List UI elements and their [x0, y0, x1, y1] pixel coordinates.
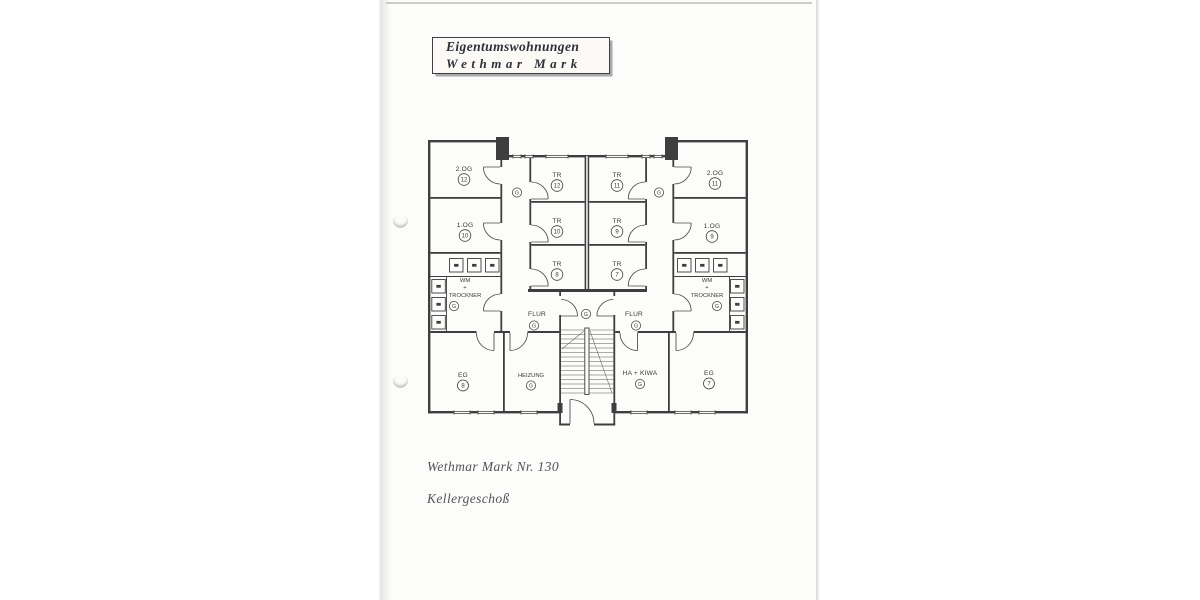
unit-number: 12	[554, 184, 561, 190]
letter: G	[715, 304, 719, 310]
room-label-wm-trockner-right: WM + TROCKNER G	[691, 278, 724, 311]
window	[606, 154, 628, 158]
room-label-1og-9: 1.OG 9	[704, 223, 721, 242]
paper-sheet: Eigentumswohnungen Wethmar Mark	[380, 0, 818, 600]
room-name: WM	[460, 278, 470, 284]
letter: G	[584, 312, 588, 318]
window	[654, 154, 662, 158]
paper-left-shadow	[380, 0, 391, 600]
unit-number: 10	[462, 234, 469, 240]
letter: G	[452, 304, 456, 310]
room-label-tr-10: TR 10	[551, 218, 563, 237]
unit-number: 12	[461, 178, 468, 184]
room-name: +	[463, 285, 467, 291]
washer-icon	[432, 298, 446, 312]
room-label-ha-kiwa: HA + KIWA G	[623, 370, 658, 389]
room-name: TR	[612, 172, 621, 179]
caption-floor: Kellergeschoß	[427, 491, 510, 507]
washer-icon	[696, 259, 710, 273]
room-name: 1.OG	[457, 222, 474, 229]
room-name: EG	[704, 370, 714, 377]
window	[675, 410, 691, 414]
unit-number: 11	[712, 182, 719, 188]
scanned-floor-plan-page: Eigentumswohnungen Wethmar Mark	[0, 0, 1200, 600]
room-name: TR	[552, 218, 561, 225]
washer-icon	[731, 316, 745, 330]
letter: G	[634, 323, 638, 329]
room-name: FLUR	[528, 311, 546, 318]
window	[521, 410, 537, 414]
unit-number: 10	[554, 230, 561, 236]
washer-icon	[450, 259, 464, 273]
punch-hole-top	[393, 213, 408, 228]
letter: G	[515, 190, 519, 196]
washer-icon	[486, 259, 500, 273]
room-label-flur-right: FLUR G	[625, 311, 643, 330]
room-name: 2.OG	[456, 166, 473, 173]
window	[631, 410, 647, 414]
room-name: TR	[612, 261, 621, 268]
room-name: TR	[552, 172, 561, 179]
floor-plan-drawing: 2.OG 12 1.OG 10 TR 12 TR 10	[418, 135, 758, 440]
washer-icon	[432, 280, 446, 294]
title-box: Eigentumswohnungen Wethmar Mark	[432, 37, 610, 74]
letter: G	[638, 382, 642, 388]
room-name: 1.OG	[704, 223, 721, 230]
letter: G	[657, 190, 661, 196]
room-name: TROCKNER	[449, 293, 482, 299]
room-name: FLUR	[625, 311, 643, 318]
room-label-tr-7: TR 7	[611, 261, 623, 280]
room-name: HEIZUNG	[518, 373, 545, 379]
corridor-letter-right: G	[654, 188, 663, 197]
stair-landing-letter: G	[581, 309, 590, 318]
window	[546, 154, 568, 158]
washer-icon	[432, 316, 446, 330]
title-line-2: Wethmar Mark	[446, 56, 609, 72]
washer-icon	[678, 259, 692, 273]
window	[699, 410, 715, 414]
washer-icon	[731, 298, 745, 312]
room-name: TROCKNER	[691, 293, 724, 299]
room-name: HA + KIWA	[623, 370, 658, 377]
window	[525, 154, 533, 158]
caption-address: Wethmar Mark Nr. 130	[427, 459, 559, 475]
window	[478, 410, 494, 414]
paper-right-edge	[816, 0, 818, 600]
punch-hole-bottom	[393, 373, 408, 388]
window	[454, 410, 470, 414]
room-label-tr-9: TR 9	[611, 218, 623, 237]
room-label-eg-8: EG 8	[458, 372, 469, 391]
washer-icon	[731, 280, 745, 294]
room-label-2og-12: 2.OG 12	[456, 166, 473, 185]
room-name: +	[705, 285, 709, 291]
washer-icon	[714, 259, 728, 273]
staircase	[561, 328, 613, 395]
corridor-letter-left: G	[512, 188, 521, 197]
window	[513, 154, 521, 158]
room-label-2og-11: 2.OG 11	[707, 170, 724, 189]
window	[642, 154, 650, 158]
room-name: TR	[552, 261, 561, 268]
room-name: TR	[612, 218, 621, 225]
paper-top-edge	[386, 2, 812, 4]
room-name: EG	[458, 372, 468, 379]
room-label-wm-trockner-left: WM + TROCKNER G	[449, 278, 482, 311]
title-line-1: Eigentumswohnungen	[446, 39, 609, 55]
room-label-tr-11: TR 11	[611, 172, 623, 191]
washer-icon	[468, 259, 482, 273]
room-label-tr-8: TR 8	[551, 261, 563, 280]
room-label-tr-12: TR 12	[551, 172, 563, 191]
unit-number: 11	[614, 184, 621, 190]
room-label-flur-left: FLUR G	[528, 311, 546, 330]
room-label-1og-10: 1.OG 10	[457, 222, 474, 241]
room-label-eg-7: EG 7	[704, 370, 715, 389]
room-name: WM	[702, 278, 712, 284]
letter: G	[532, 323, 536, 329]
room-label-heizung: HEIZUNG G	[518, 373, 545, 390]
room-name: 2.OG	[707, 170, 724, 177]
letter: G	[529, 383, 533, 389]
